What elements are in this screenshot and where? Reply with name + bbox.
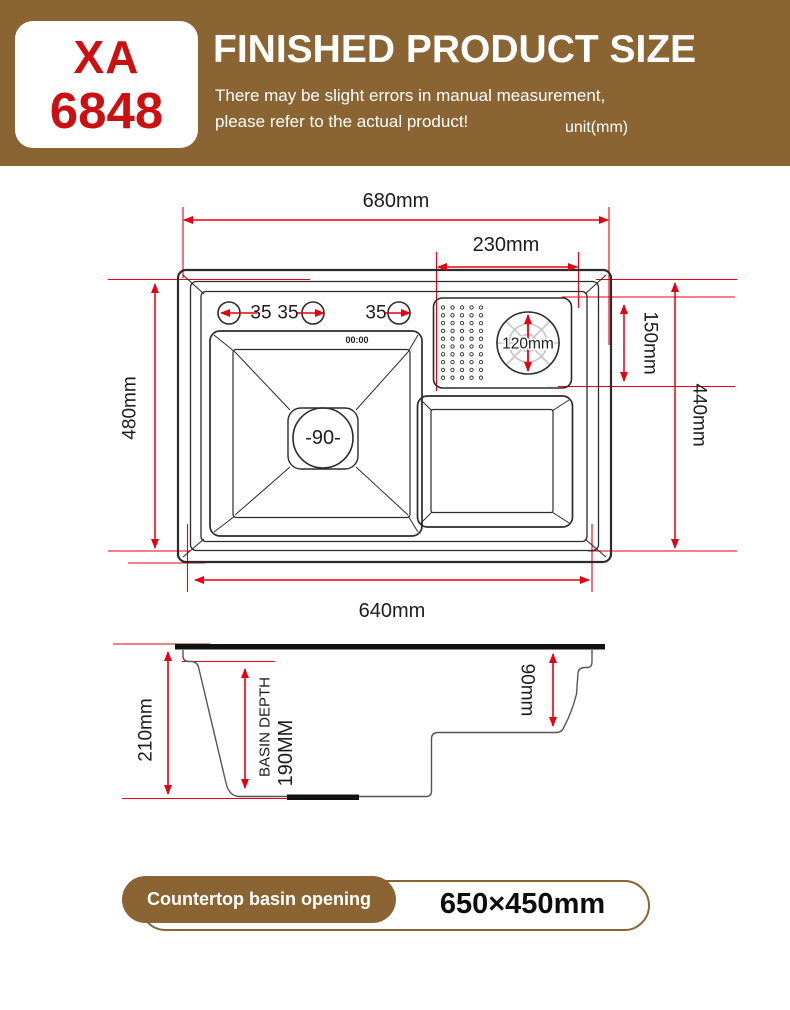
basin-depth-value: 190MM [275,720,297,787]
countertop-bar [175,644,605,650]
flange-size-label: 120mm [502,336,554,353]
side-dimension-arrows [168,652,553,794]
dim-width-outer: 680mm [363,190,430,212]
faucet-hole-label-3: 35 [365,303,386,324]
basin-depth-label: BASIN DEPTH [257,677,274,777]
countertop-opening-label: Countertop basin opening [147,889,371,910]
countertop-opening-badge: Countertop basin opening [122,876,396,923]
dim-total-depth: 210mm [136,698,157,761]
faucet-hole-label-2: 35 [277,303,298,324]
small-basin [418,396,573,527]
clock-display: 00:00 [345,335,368,345]
dim-width-inner: 640mm [359,600,426,622]
dim-height-inner: 440mm [689,383,710,446]
drainboard-perforations [441,306,482,380]
drain-size-label: -90- [305,427,341,449]
countertop-opening-value: 650×450mm [400,880,645,929]
dim-small-basin-depth: 90mm [517,664,538,717]
rim-corner-bevels [183,275,606,557]
page: XA 6848 FINISHED PRODUCT SIZE There may … [0,0,790,1010]
dimension-drawing: 35 35 35 00:00 -90- [0,0,790,1010]
dim-height-outer: 480mm [120,376,141,439]
drain-bar [287,795,359,801]
dim-drainboard-width: 230mm [473,234,540,256]
faucet-hole-label-1: 35 [250,303,271,324]
dim-drainboard-height: 150mm [640,311,661,374]
